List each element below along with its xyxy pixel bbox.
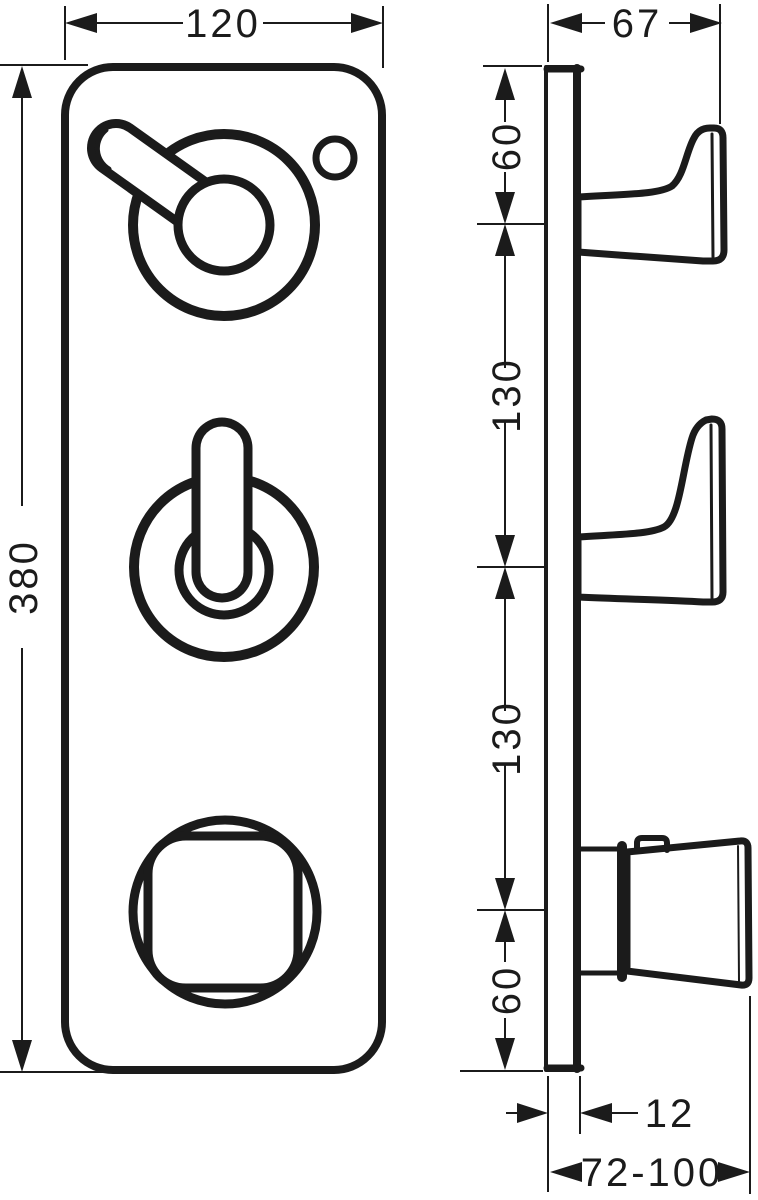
dim-label-projection: 72-100 [581, 1151, 724, 1195]
arrow-left [65, 13, 97, 33]
arrow-right [690, 13, 722, 33]
top-handle-side-profile [578, 128, 724, 261]
dim-label-seg-top: 60 [485, 121, 529, 172]
arrow-left [580, 1103, 612, 1123]
arrow-left [550, 13, 582, 33]
top-handle-knob-face [178, 179, 270, 271]
arrow-up [495, 567, 515, 599]
top-handle-side-face-line [712, 134, 713, 257]
side-view [546, 67, 749, 1070]
thermostat-knob-face [148, 836, 298, 988]
dim-label-height: 380 [2, 539, 46, 615]
dim-label-thickness: 12 [645, 1092, 696, 1136]
arrow-up [495, 68, 515, 100]
dim-label-seg-bottom: 60 [485, 965, 529, 1016]
arrow-right [517, 1103, 548, 1123]
arrow-down [495, 1038, 515, 1070]
dim-label-depth: 67 [612, 2, 663, 46]
dim-label-seg-upper: 130 [485, 357, 529, 433]
arrow-down [495, 192, 515, 224]
thermostat-side-profile [627, 841, 749, 985]
arrow-up [12, 66, 32, 98]
arrow-right [351, 13, 383, 33]
index-dot [316, 139, 354, 177]
thermostat-side-face-line [738, 846, 739, 981]
drawing-page: 120 67 380 60 130 130 60 12 72-100 [0, 0, 758, 1200]
arrow-down [12, 1040, 32, 1072]
arrow-left [550, 1162, 582, 1182]
arrow-up [495, 224, 515, 256]
middle-handle-side-profile [578, 419, 723, 602]
dim-label-seg-lower: 130 [485, 700, 529, 776]
arrow-down [495, 535, 515, 567]
arrow-up [495, 910, 515, 942]
arrow-down [495, 878, 515, 910]
front-view [65, 67, 382, 1070]
dim-label-width: 120 [185, 2, 261, 46]
middle-handle-side-face-line [711, 425, 712, 598]
dimension-drawing: 120 67 380 60 130 130 60 12 72-100 [0, 0, 758, 1200]
